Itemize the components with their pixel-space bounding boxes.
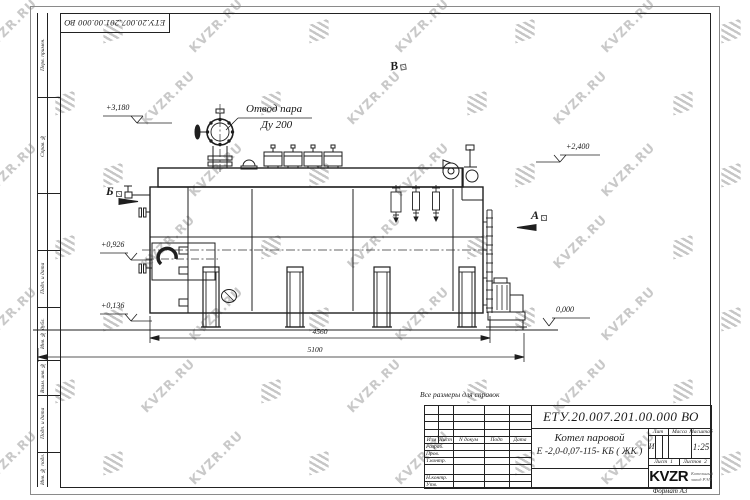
tb-scale-value: 1:25 bbox=[691, 435, 711, 458]
tb-sheets-cell: Листов 2 bbox=[679, 458, 711, 465]
tb-col-podp: Подп bbox=[484, 436, 509, 443]
tb-row-utv: Утв. bbox=[426, 482, 437, 488]
dimension-5100 bbox=[38, 333, 524, 362]
drum-end-fan bbox=[443, 145, 478, 182]
level-gauges bbox=[391, 185, 440, 222]
kvzr-logo-subtext-line2: завод РЭП bbox=[691, 477, 713, 482]
tb-sheet-cell: Лист 1 bbox=[648, 458, 679, 465]
steam-outlet-label: Отвод пара bbox=[246, 103, 302, 115]
view-marker-sub-icon bbox=[400, 64, 407, 71]
tb-col-ndoc: N докум bbox=[453, 436, 484, 443]
elevation-marks bbox=[100, 116, 600, 326]
view-marker-b: Б bbox=[106, 184, 122, 199]
tb-col-list: Лист bbox=[438, 436, 453, 443]
tb-designation: ЕТУ.20.007.201.00.000 ВО bbox=[531, 406, 711, 428]
elevation-label-0926: +0,926 bbox=[101, 240, 124, 249]
elevation-label-0136: +0,136 bbox=[101, 301, 124, 310]
tb-col-izm: Изм bbox=[425, 436, 438, 443]
tb-col-data: Дата bbox=[509, 436, 531, 443]
top-designation-stamp: ЕТУ.20.007.201.00.000 ВО bbox=[60, 13, 170, 33]
view-marker-sub-icon bbox=[541, 215, 547, 221]
drawing-sheet: KVZR.RUKVZR.RUKVZR.RUKVZR.RUKVZR.RUKVZR.… bbox=[0, 0, 750, 500]
top-designation-text: ЕТУ.20.007.201.00.000 ВО bbox=[64, 18, 165, 28]
kvzr-logo-subtext: Котельный завод РЭП bbox=[691, 471, 713, 482]
fan-unit bbox=[486, 278, 527, 330]
tb-row-nkontr: Н.контр. bbox=[426, 475, 447, 481]
front-fittings bbox=[124, 186, 188, 306]
tb-sheet-no: 1 bbox=[670, 459, 673, 465]
elevation-label-3180: +3,180 bbox=[106, 103, 129, 112]
view-marker-sub-icon bbox=[116, 191, 122, 197]
tb-lit-label: Лит bbox=[648, 428, 668, 435]
tb-product-name-line2: Е -2,0-0,07-115- КБ ( ЖК ) bbox=[531, 445, 648, 459]
tb-scale-label: Масштаб bbox=[691, 428, 711, 435]
tb-lit-value: И bbox=[648, 435, 655, 458]
view-letter-b: Б bbox=[106, 184, 114, 198]
boiler-body bbox=[142, 168, 492, 313]
safety-valves bbox=[264, 145, 342, 168]
tb-row-razrab: Разраб. bbox=[426, 444, 444, 450]
tb-row-prov: Пров. bbox=[426, 451, 439, 457]
tb-row-tkontr: Т.контр. bbox=[426, 458, 446, 464]
tb-sheet-label: Лист bbox=[654, 459, 667, 465]
title-block: Изм Лист N докум Подп Дата Разраб. Пров.… bbox=[424, 405, 712, 489]
steam-outlet-size-label: Ду 200 bbox=[261, 119, 292, 131]
elevation-label-2400: +2,400 bbox=[566, 142, 589, 151]
kvzr-logo: KVZR Котельный завод РЭП bbox=[648, 465, 711, 488]
tb-product-name-line1: Котел паровой bbox=[531, 430, 648, 446]
format-note: Формат А3 bbox=[635, 487, 705, 495]
kvzr-logo-word: KVZR bbox=[649, 468, 688, 485]
steam-outlet-valve bbox=[195, 104, 234, 174]
support-legs bbox=[201, 267, 477, 327]
tb-mass-label: Масса bbox=[668, 428, 691, 435]
view-arrows bbox=[119, 199, 536, 231]
reference-note: Все размеры для справок bbox=[420, 390, 500, 399]
manhole bbox=[222, 290, 237, 303]
view-marker-v: В bbox=[389, 57, 407, 75]
tb-sheets-total: 2 bbox=[704, 459, 707, 465]
elevation-label-0000: 0,000 bbox=[556, 305, 574, 314]
view-marker-a: А bbox=[531, 208, 547, 223]
view-letter-a: А bbox=[531, 208, 539, 222]
tb-sheets-label: Листов bbox=[683, 459, 701, 465]
dimension-label-5100: 5100 bbox=[285, 345, 345, 354]
view-letter-v: В bbox=[389, 58, 399, 73]
dimension-label-4560: 4560 bbox=[290, 327, 350, 336]
